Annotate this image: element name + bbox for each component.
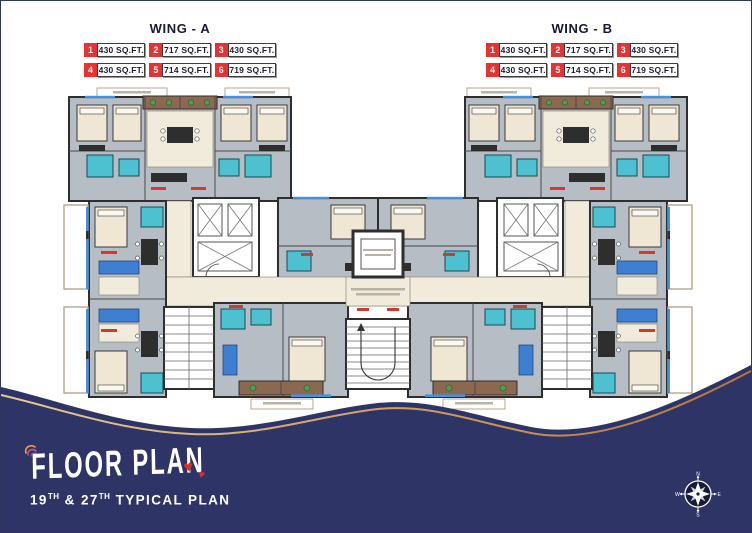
floor-plan-page: WING - A 1 430 SQ.FT. 2 717 SQ.FT. 3 430… bbox=[0, 0, 752, 533]
subtitle-part: 19 bbox=[30, 493, 48, 508]
floor-plan-title: FLOOR PLAN bbox=[31, 440, 205, 489]
wing-b-plan bbox=[378, 88, 692, 409]
subtitle-part: & 27 bbox=[60, 493, 99, 508]
floor-plan-subtitle: 19TH & 27TH TYPICAL PLAN bbox=[30, 492, 230, 508]
subtitle-part: TYPICAL PLAN bbox=[110, 493, 230, 508]
subtitle-sup: TH bbox=[99, 492, 111, 501]
compass-e-label: E bbox=[718, 492, 722, 498]
compass-n-label: N bbox=[696, 472, 700, 478]
compass-s-label: S bbox=[696, 513, 700, 517]
subtitle-sup: TH bbox=[48, 492, 60, 501]
wing-a-plan bbox=[64, 88, 378, 409]
central-core-plan bbox=[346, 231, 410, 389]
compass-icon: N E S W bbox=[675, 471, 721, 517]
compass-w-label: W bbox=[675, 492, 680, 498]
